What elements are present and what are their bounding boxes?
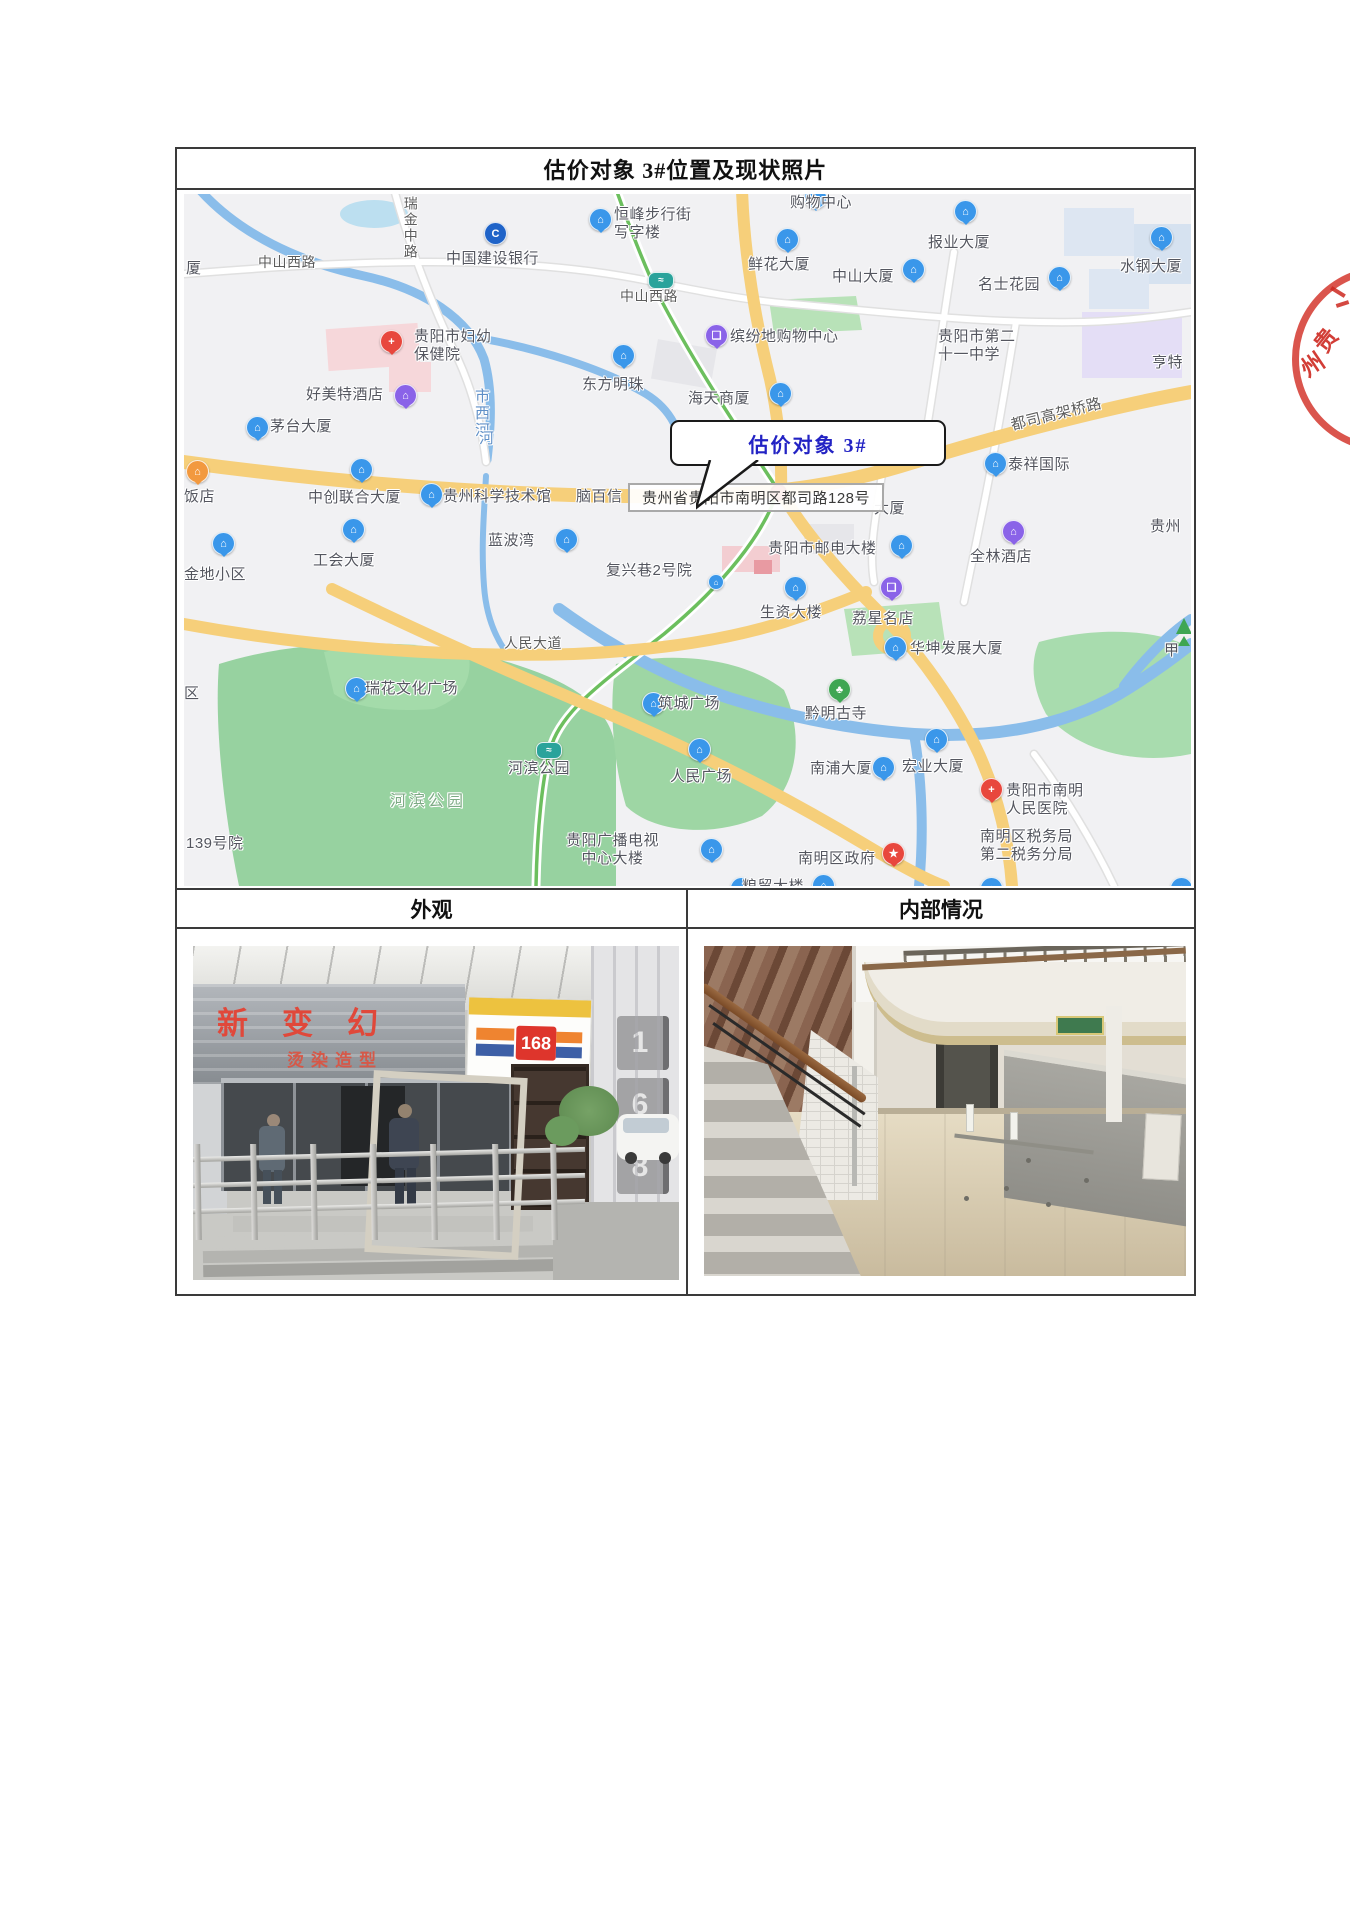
map-label: 宏业大厦 bbox=[902, 758, 964, 776]
map-pin-blue: ⌂ bbox=[700, 838, 723, 861]
map-pin-blue: ⌂ bbox=[708, 574, 724, 590]
map-pin-teal: ≈ bbox=[648, 272, 674, 289]
map-label: 亨特 bbox=[1152, 354, 1183, 372]
map-label: 筑城广场 bbox=[658, 695, 720, 713]
map-pin-blue: ⌂ bbox=[612, 344, 635, 367]
map-pin-blue: ⌂ bbox=[872, 756, 895, 779]
leaning-panel bbox=[1142, 1113, 1181, 1181]
map-pin-orange: ⌂ bbox=[186, 460, 209, 483]
map-label: 饭店 bbox=[184, 488, 215, 506]
map-pin-blue: ⌂ bbox=[902, 258, 925, 281]
car-wheel bbox=[659, 1152, 671, 1164]
sign-168-number: 168 bbox=[516, 1026, 557, 1061]
map-pin-blue: ⌂ bbox=[350, 458, 373, 481]
map-label: 恒峰步行街写字楼 bbox=[614, 206, 692, 242]
map-pin-blue: ⌂ bbox=[555, 528, 578, 551]
map-label: 华坤发展大厦 bbox=[910, 640, 1003, 658]
subject-callout-tail bbox=[696, 460, 766, 512]
map-label: 贵州 bbox=[1150, 518, 1181, 536]
map-label: 中创联合大厦 bbox=[308, 489, 401, 507]
map-label: 瑞花文化广场 bbox=[365, 680, 458, 698]
map-label: 区 bbox=[184, 685, 200, 703]
map-label: 河滨公园 bbox=[508, 760, 570, 778]
awning-subtext: 烫染造型 bbox=[287, 1046, 383, 1071]
subject-callout-label: 估价对象 3# bbox=[749, 429, 868, 458]
map-pin-blue: ⌂ bbox=[954, 200, 977, 223]
map-pin-blue: ⌂ bbox=[984, 452, 1007, 475]
map-label: 工会大厦 bbox=[313, 552, 375, 570]
map-pin-blue: ⌂ bbox=[420, 483, 443, 506]
map-pin-purple: ⌂ bbox=[394, 384, 417, 407]
map-pin-blue: ⌂ bbox=[890, 534, 913, 557]
mezzanine-balcony bbox=[864, 962, 1186, 1045]
sign-orange-stripe bbox=[556, 1032, 582, 1044]
map-label: 报业大厦 bbox=[928, 234, 990, 252]
map-label: 金地小区 bbox=[184, 566, 246, 584]
map-pin-blue: ⌂ bbox=[784, 576, 807, 599]
floor-post bbox=[1010, 1112, 1018, 1140]
map-label: 海天商厦 bbox=[688, 390, 750, 408]
table-title-row: 估价对象 3#位置及现状照片 bbox=[177, 149, 1194, 190]
map-pin-green: ♣ bbox=[828, 678, 851, 701]
map-label: 中山西路 bbox=[620, 288, 678, 305]
stair-newel-post bbox=[852, 1066, 857, 1186]
map-label: 贵阳市妇幼保健院 bbox=[414, 328, 492, 364]
sidewalk bbox=[553, 1202, 679, 1280]
map-pin-blue: ⌂ bbox=[1150, 226, 1173, 249]
map-label: 人民大道 bbox=[504, 635, 562, 652]
map-label: 河 bbox=[476, 430, 494, 447]
map-label: 荔星名店 bbox=[852, 610, 914, 628]
floor-debris bbox=[1004, 1186, 1009, 1191]
car-wheel bbox=[625, 1152, 637, 1164]
map-label: 河滨公园 bbox=[390, 792, 466, 811]
map-pin-navy: C bbox=[484, 222, 507, 245]
exterior-photo: 168 新变幻 烫染造型 168 bbox=[193, 946, 679, 1280]
sign-blue-stripe bbox=[556, 1047, 582, 1059]
map-label: 贵阳广播电视中心大楼 bbox=[566, 832, 659, 868]
floor-post bbox=[966, 1104, 974, 1132]
map-label: 脑百信 bbox=[576, 488, 623, 506]
map-label: 贵阳市南明人民医院 bbox=[1006, 782, 1084, 818]
map-label: 中山大厦 bbox=[832, 268, 894, 286]
map-label: 名士花园 bbox=[978, 276, 1040, 294]
map-label: 人民广场 bbox=[670, 768, 732, 786]
map-label: 缤纷地购物中心 bbox=[730, 328, 839, 346]
balcony-sign bbox=[1056, 1016, 1104, 1035]
floor-debris bbox=[1084, 1178, 1089, 1183]
interior-doorway-inner bbox=[944, 1038, 990, 1114]
greenery bbox=[545, 1116, 579, 1146]
floor-debris bbox=[1046, 1202, 1051, 1207]
map-pin-blue: ⌂ bbox=[342, 518, 365, 541]
location-map: 估价对象 3# 贵州省贵阳市南明区都司路128号 厦中山西路瑞金中路中国建设银行… bbox=[184, 194, 1191, 886]
map-label: 粮贸大楼 bbox=[742, 878, 804, 886]
map-pin-purple: ❑ bbox=[705, 324, 728, 347]
map-pin-red: + bbox=[980, 778, 1003, 801]
interior-header: 内部情况 bbox=[688, 890, 1194, 927]
map-label: 好美特酒店 bbox=[306, 386, 384, 404]
exterior-awning-sign: 新变幻 烫染造型 bbox=[193, 984, 465, 1084]
map-pin-teal: ≈ bbox=[536, 742, 562, 759]
map-pin-blue: ⌂ bbox=[776, 228, 799, 251]
map-label: 全林酒店 bbox=[970, 548, 1032, 566]
map-pin-purple: ❑ bbox=[880, 576, 903, 599]
page-title: 估价对象 3#位置及现状照片 bbox=[544, 153, 828, 185]
sign-orange-stripe bbox=[476, 1028, 514, 1041]
map-pin-blue: ⌂ bbox=[884, 636, 907, 659]
map-label: 南浦大厦 bbox=[810, 760, 872, 778]
map-label: 购物中心 bbox=[790, 194, 852, 212]
map-label: 贵阳市邮电大楼 bbox=[768, 540, 877, 558]
map-label: 贵阳市第二十一中学 bbox=[938, 328, 1016, 364]
map-label: 贵州科学技术馆 bbox=[443, 488, 552, 506]
map-pin-blue: ⌂ bbox=[246, 416, 269, 439]
map-label: 139号院 bbox=[186, 835, 244, 853]
awning-text: 新变幻 bbox=[217, 998, 412, 1043]
map-label: 东方明珠 bbox=[582, 376, 644, 394]
map-label: 鲜花大厦 bbox=[748, 256, 810, 274]
floor-debris bbox=[1026, 1158, 1031, 1163]
map-label: 中国建设银行 bbox=[446, 250, 539, 268]
map-label: 甲 bbox=[1164, 642, 1180, 660]
map-label: 南明区税务局第二税务分局 bbox=[980, 828, 1073, 864]
column-divider bbox=[686, 888, 688, 1294]
map-label: 水钢大厦 bbox=[1120, 258, 1182, 276]
map-label: 瑞金中路 bbox=[402, 196, 419, 260]
map-label: 生资大楼 bbox=[760, 604, 822, 622]
map-label: 南明区政府 bbox=[798, 850, 876, 868]
exterior-header: 外观 bbox=[177, 890, 686, 927]
interior-photo bbox=[704, 946, 1186, 1276]
vertical-sign-char: 1 bbox=[617, 1016, 669, 1070]
map-pin-blue: ⌂ bbox=[925, 728, 948, 751]
map-pin-blue: ⌂ bbox=[589, 208, 612, 231]
map-label: 泰祥国际 bbox=[1008, 456, 1070, 474]
map-pin-red: + bbox=[380, 330, 403, 353]
map-label: 复兴巷2号院 bbox=[606, 562, 692, 580]
sign-yellow-band bbox=[469, 997, 591, 1017]
map-pin-blue: ⌂ bbox=[212, 532, 235, 555]
interior-pillar bbox=[1106, 1006, 1122, 1122]
floor-wall-edge bbox=[854, 1108, 1186, 1114]
sign-blue-stripe bbox=[476, 1044, 514, 1057]
report-table: 估价对象 3#位置及现状照片 bbox=[175, 147, 1196, 1296]
map-pin-purple: ⌂ bbox=[1002, 520, 1025, 543]
floor-debris bbox=[964, 1196, 969, 1201]
report-page: { "document": { "title": "估价对象 3#位置及现状照片… bbox=[0, 0, 1350, 1909]
tilted-door-frame bbox=[364, 1070, 527, 1260]
map-label: 茅台大厦 bbox=[270, 418, 332, 436]
map-label: 中山西路 bbox=[258, 254, 316, 271]
map-pin-red: ★ bbox=[882, 842, 905, 865]
map-pin-blue: ⌂ bbox=[688, 738, 711, 761]
map-label: 黔明古寺 bbox=[805, 705, 867, 723]
map-pin-blue: ⌂ bbox=[769, 382, 792, 405]
map-label: 厦 bbox=[186, 260, 202, 278]
map-pin-blue: ⌂ bbox=[1048, 266, 1071, 289]
map-label: 蓝波湾 bbox=[488, 532, 535, 550]
car-window bbox=[623, 1118, 669, 1133]
